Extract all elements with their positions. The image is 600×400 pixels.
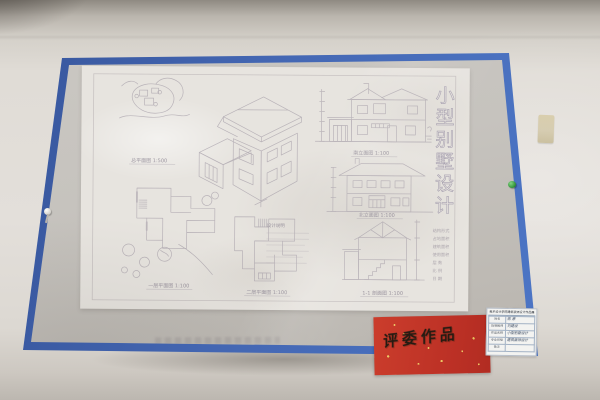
floor2-caption: 二层平面图 1:100 [246, 290, 287, 296]
title-char-3: 别 [435, 129, 454, 151]
title-char-5: 设 [435, 173, 454, 195]
exhibit-label-table: 姓名 陈 原 指导教师 刘建设 作品名称 小型别墅设计 专业班级 建筑装饰设计 … [488, 316, 536, 353]
floor1-caption: 一层平面图 1:100 [148, 283, 189, 289]
award-calligraphy: 评委作品 [383, 319, 489, 352]
title-char-1: 小 [436, 85, 455, 107]
site-plan-caption: 总平面图 1:500 [131, 157, 167, 164]
mat-board: 总平面图 1:500 一层平面图 1:100 二层平面图 1:100 南立面图 … [20, 50, 540, 360]
section-1-1 [342, 219, 424, 280]
table-row: 备注 [488, 344, 534, 352]
hook-stem [45, 214, 49, 223]
award-card: 评委作品 [373, 315, 490, 375]
svg-text:比 例: 比 例 [432, 267, 442, 274]
section-caption: 1-1 剖面图 1:100 [362, 290, 403, 297]
tape-strip [538, 115, 555, 144]
floor-plan-1 [121, 188, 215, 278]
notes-caption: 设计说明 [267, 222, 286, 229]
svg-text:占地面积: 占地面积 [433, 235, 450, 242]
svg-text:结构形式: 结构形式 [433, 227, 451, 234]
picture-frame: 总平面图 1:500 一层平面图 1:100 二层平面图 1:100 南立面图 … [20, 50, 540, 360]
panel-captions: 总平面图 1:500 一层平面图 1:100 二层平面图 1:100 南立面图 … [130, 148, 404, 297]
green-pushpin-icon [508, 181, 516, 188]
elev-north-caption: 北立面图 1:100 [359, 212, 395, 219]
drawing-sheet: 总平面图 1:500 一层平面图 1:100 二层平面图 1:100 南立面图 … [80, 66, 470, 312]
svg-text:层 数: 层 数 [432, 259, 443, 266]
title-char-6: 计 [435, 195, 454, 217]
title-char-2: 型 [435, 107, 454, 129]
svg-text:建筑面积: 建筑面积 [433, 243, 450, 250]
elevation-south [315, 83, 431, 142]
site-plan [119, 78, 189, 119]
title-char-4: 墅 [435, 151, 454, 173]
design-notes-lines [266, 233, 308, 263]
elevation-north [327, 158, 433, 212]
villa-design-drawing: 总平面图 1:500 一层平面图 1:100 二层平面图 1:100 南立面图 … [80, 66, 470, 312]
floor-plan-2 [234, 217, 296, 281]
wall-hook [43, 208, 53, 224]
photo-scene: 总平面图 1:500 一层平面图 1:100 二层平面图 1:100 南立面图 … [0, 0, 600, 400]
svg-text:使用面积: 使用面积 [433, 251, 450, 258]
exhibit-label-card: 美术设计学院建筑装饰设计作品展 姓名 陈 原 指导教师 刘建设 作品名称 小型别… [486, 308, 538, 357]
axonometric-view [199, 96, 302, 207]
title-vertical: 小 型 别 墅 设 计 [435, 85, 455, 217]
pencil-smudge [155, 337, 280, 345]
svg-text:日 期: 日 期 [432, 276, 442, 282]
spec-block: 结构形式 占地面积 建筑面积 使用面积 层 数 比 例 日 期 [432, 227, 450, 282]
elev-south-caption: 南立面图 1:100 [353, 150, 389, 157]
